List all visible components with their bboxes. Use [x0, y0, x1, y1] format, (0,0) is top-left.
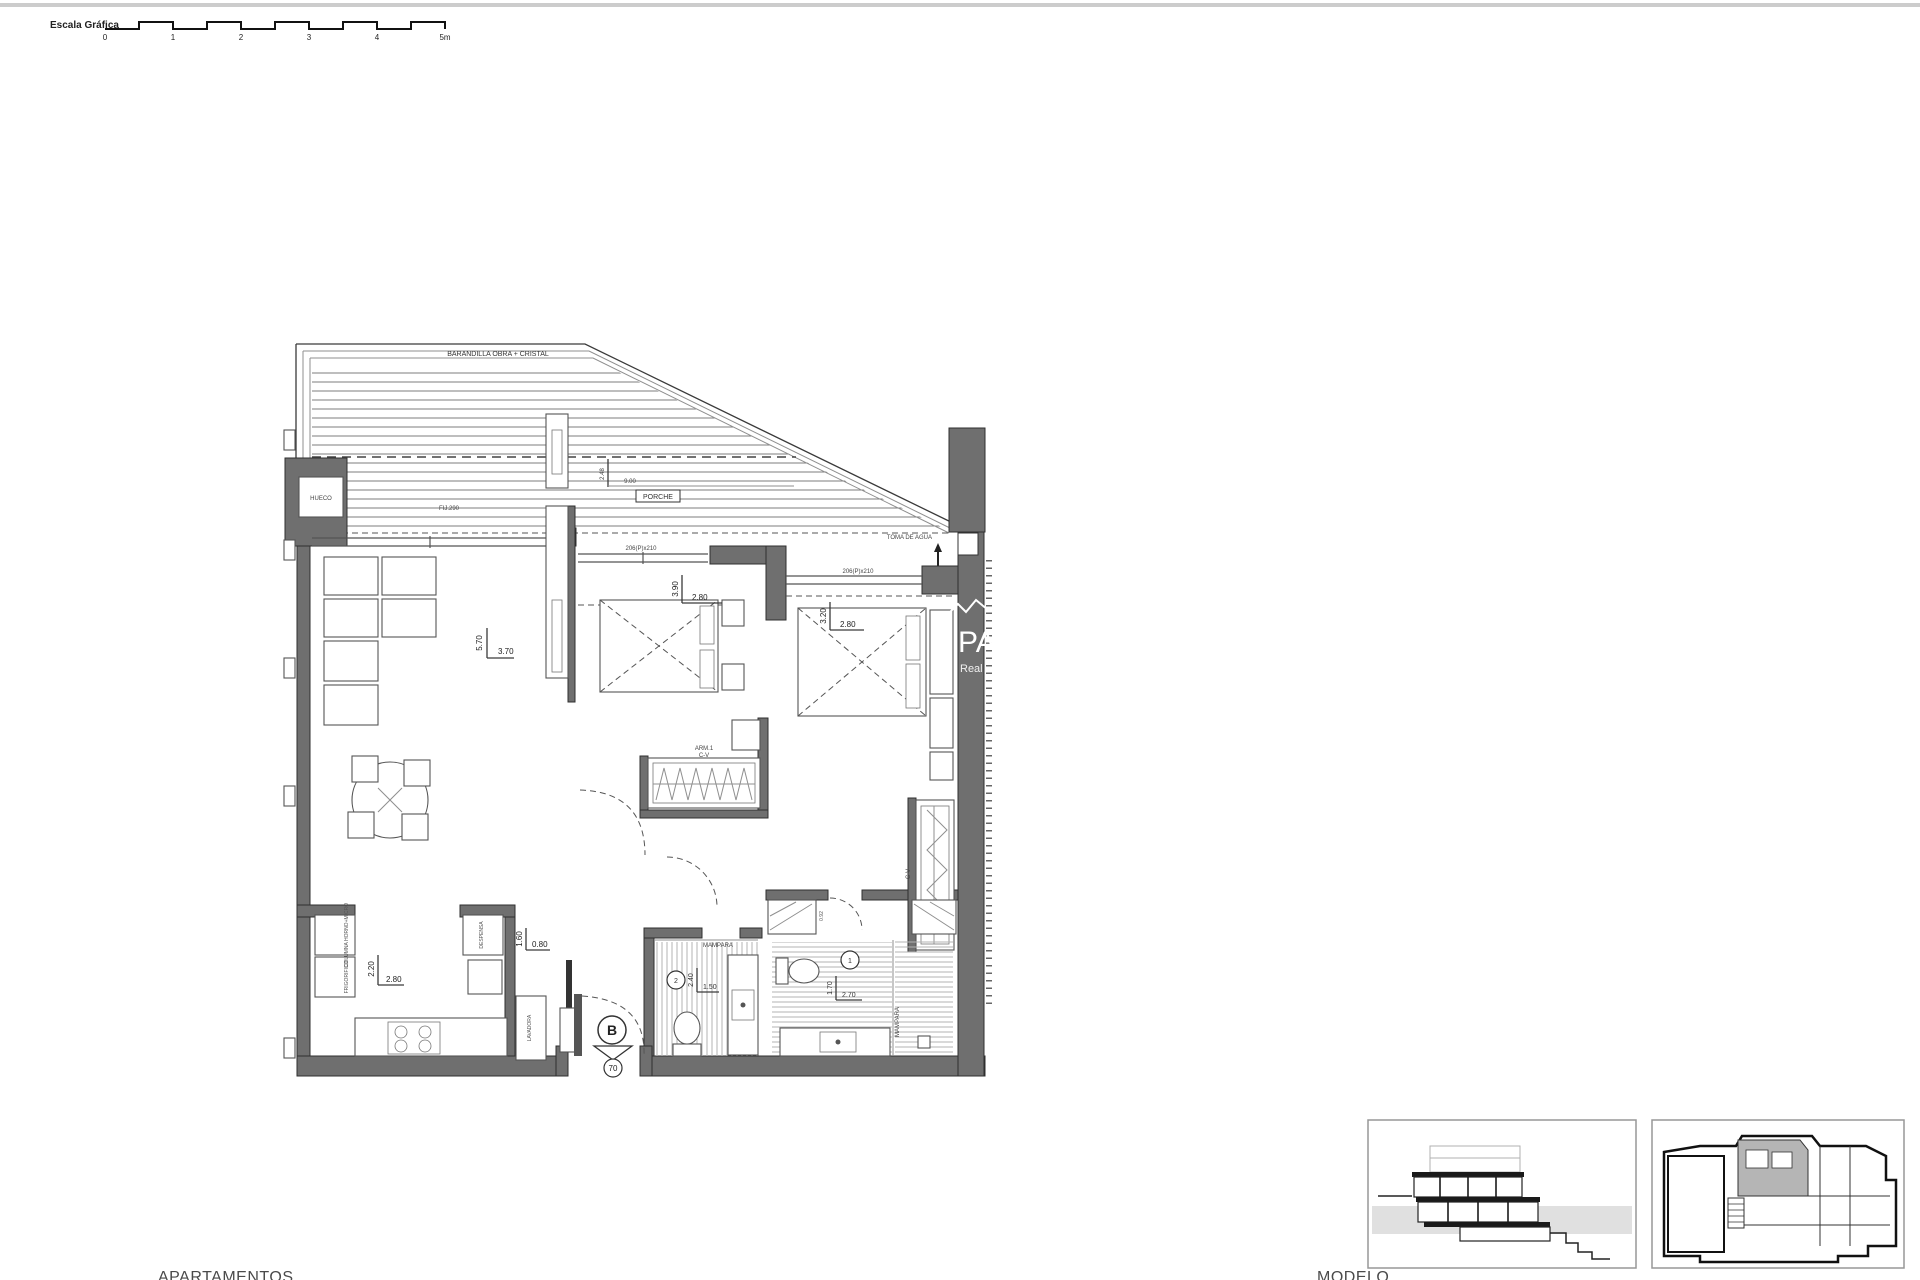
bed2-dim-v: 3.20 [819, 608, 828, 624]
water-tap-arrow-icon [934, 543, 942, 552]
water-tap-niche [958, 533, 978, 555]
hall-door-arc [667, 857, 717, 906]
wall-partition-strip [568, 506, 575, 702]
scale-bar: Escala Gráfica 0 1 2 3 4 5m [50, 20, 451, 42]
porch-width-dim: 9.00 [624, 479, 636, 485]
bed2-dim-h: 2.80 [840, 620, 856, 629]
living-dim-h: 3.70 [498, 647, 514, 656]
unit-letter: B [607, 1022, 617, 1038]
laundry-label: LAVADORA [527, 1014, 533, 1041]
toilet2-bowl [674, 1012, 700, 1044]
scale-bar-steps [105, 22, 445, 29]
wall-right [958, 530, 984, 1076]
wall-bottom-bath [641, 1056, 985, 1076]
wall-topright-block [949, 428, 985, 532]
kitchen: COLUMNA HORNO+MICRO FRIGORIFICO DESPENSA… [315, 903, 507, 1056]
bed1-door-arc [580, 790, 645, 855]
scale-tick-1: 1 [171, 33, 176, 42]
wall-left [297, 546, 310, 1076]
watermark-small: Real [960, 663, 983, 675]
kitchen-fridge-label: FRIGORIFICO [344, 961, 350, 994]
door-number: 70 [609, 1064, 618, 1073]
bath2-screen-label: MAMPARA [703, 943, 733, 949]
kitchen-tall-unit-label: COLUMNA HORNO+MICRO [344, 903, 350, 967]
slider2-label: 206(P)x210 [842, 569, 874, 575]
wall-door-jamb-right [640, 1046, 652, 1076]
porch-label: PORCHE [643, 494, 673, 501]
hallway: 1.60 0.80 LAVADORA [515, 928, 576, 1060]
entrance-door-leaf [574, 994, 582, 1056]
keyplan-court [1668, 1156, 1724, 1252]
bath2-number: 2 [674, 978, 678, 985]
wall-hall-bath [644, 938, 654, 1056]
wall-closet1-bottom [640, 810, 768, 818]
bath1-number: 1 [848, 958, 852, 965]
scale-tick-2: 2 [239, 33, 244, 42]
north-triangle-icon [594, 1046, 632, 1060]
living-room: 5.70 3.70 [324, 557, 645, 855]
bed1-closet-label1: ARM.1 [695, 746, 714, 752]
nightstand-icon [722, 600, 744, 626]
bath-cabinet-left [768, 900, 816, 934]
terrace-decking [312, 368, 948, 533]
floor-plan-canvas: Escala Gráfica 0 1 2 3 4 5m BARANDILLA O… [0, 0, 1920, 1280]
kitchen-pantry-label: DESPENSA [479, 921, 485, 949]
entrance: B 70 [574, 994, 644, 1077]
kitchen-dim-h: 2.80 [386, 975, 402, 984]
footer-left-title: APARTAMENTOS [158, 1269, 294, 1280]
wall-bath2-top-a [644, 928, 702, 938]
hall-dim-h: 0.80 [532, 940, 548, 949]
fixed-window-label: FIJ.290 [439, 506, 460, 512]
living-dim-v: 5.70 [475, 635, 484, 651]
shower-drain-icon [918, 1036, 930, 1048]
toilet1-bowl [789, 959, 819, 983]
sofa-icon [324, 557, 378, 595]
railing-label: BARANDILLA OBRA + CRISTAL [447, 351, 549, 358]
scale-tick-3: 3 [307, 33, 312, 42]
keyplan-stairs [1728, 1198, 1744, 1228]
terrace: BARANDILLA OBRA + CRISTAL 2.48 9.00 PORC… [296, 344, 955, 566]
bed1-dim-h: 2.80 [692, 593, 708, 602]
bed1-dim-v: 3.90 [671, 581, 680, 597]
bath1-dim-h: 2.70 [842, 992, 856, 999]
bath1-door-arc [830, 898, 862, 930]
inset-keyplan [1652, 1120, 1904, 1268]
inset-section [1368, 1120, 1636, 1268]
scale-tick-4: 4 [375, 33, 380, 42]
chair-icon [352, 756, 378, 782]
wall-closet1-left [640, 756, 648, 814]
scale-tick-0: 0 [103, 33, 108, 42]
wall-bed2-end [922, 566, 958, 594]
scale-tick-5: 5m [439, 33, 450, 42]
watermark-big: PA [958, 626, 996, 659]
bathroom-2: MAMPARA 2 2.40 1.50 [654, 940, 758, 1056]
toilet1-tank [776, 958, 788, 984]
bed2-closet-label: C-V [906, 869, 912, 879]
bath2-dim-v: 2.40 [688, 973, 695, 987]
hueco-label: HUECO [310, 496, 332, 502]
footer-right-title: MODELO [1317, 1269, 1389, 1280]
slider1-label: 206(P)x210 [625, 546, 657, 552]
toilet2-tank [673, 1044, 701, 1056]
bed1-closet-label2: C-V [699, 753, 709, 759]
bath2-dim-h: 1.50 [703, 984, 717, 991]
page-top-rule [0, 3, 1920, 7]
bath1-cab-dim: 0.92 [819, 911, 825, 921]
bathroom-1: 1 1.70 2.70 MAMPARA 0.92 [768, 898, 956, 1056]
water-tap-label: TOMA DE AGUA [887, 535, 932, 541]
wall-facade-L2 [766, 546, 786, 620]
porch-depth-dim: 2.48 [600, 468, 606, 480]
bedroom-1: 3.90 2.80 ARM.1 C-V [578, 575, 760, 906]
bath1-screen-label: MAMPARA [895, 1007, 901, 1037]
kitchen-dim-v: 2.20 [367, 961, 376, 977]
hall-dim-v: 1.60 [515, 931, 524, 947]
bath1-dim-v: 1.70 [827, 981, 834, 995]
wall-bed-bath-a [766, 890, 828, 900]
wall-bath2-top-b [740, 928, 762, 938]
